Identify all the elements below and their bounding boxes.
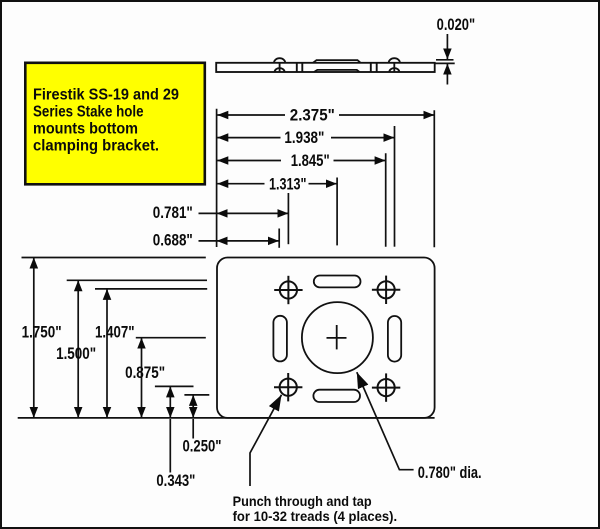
svg-text:0.781": 0.781"	[153, 204, 193, 222]
svg-text:1.845": 1.845"	[291, 152, 330, 170]
svg-text:1.750": 1.750"	[22, 323, 62, 341]
svg-text:0.250": 0.250"	[183, 437, 222, 455]
svg-text:1.313": 1.313"	[269, 175, 307, 193]
svg-text:0.020": 0.020"	[437, 16, 476, 34]
svg-text:0.343": 0.343"	[156, 472, 195, 490]
svg-text:2.375": 2.375"	[290, 107, 335, 125]
svg-text:0.875": 0.875"	[125, 364, 165, 382]
svg-text:1.407": 1.407"	[95, 323, 135, 341]
svg-text:0.780" dia.: 0.780" dia.	[418, 464, 482, 482]
svg-text:clamping bracket.: clamping bracket.	[33, 138, 159, 155]
svg-text:Punch through and tap: Punch through and tap	[233, 494, 372, 509]
svg-text:mounts bottom: mounts bottom	[33, 121, 138, 138]
svg-text:1.500": 1.500"	[56, 345, 96, 363]
svg-text:Firestik SS-19 and 29: Firestik SS-19 and 29	[33, 86, 179, 103]
svg-text:for 10-32 treads (4 places).: for 10-32 treads (4 places).	[233, 509, 398, 524]
svg-text:Series Stake hole: Series Stake hole	[33, 104, 144, 121]
svg-text:1.938": 1.938"	[284, 129, 324, 147]
svg-text:0.688": 0.688"	[153, 231, 193, 249]
